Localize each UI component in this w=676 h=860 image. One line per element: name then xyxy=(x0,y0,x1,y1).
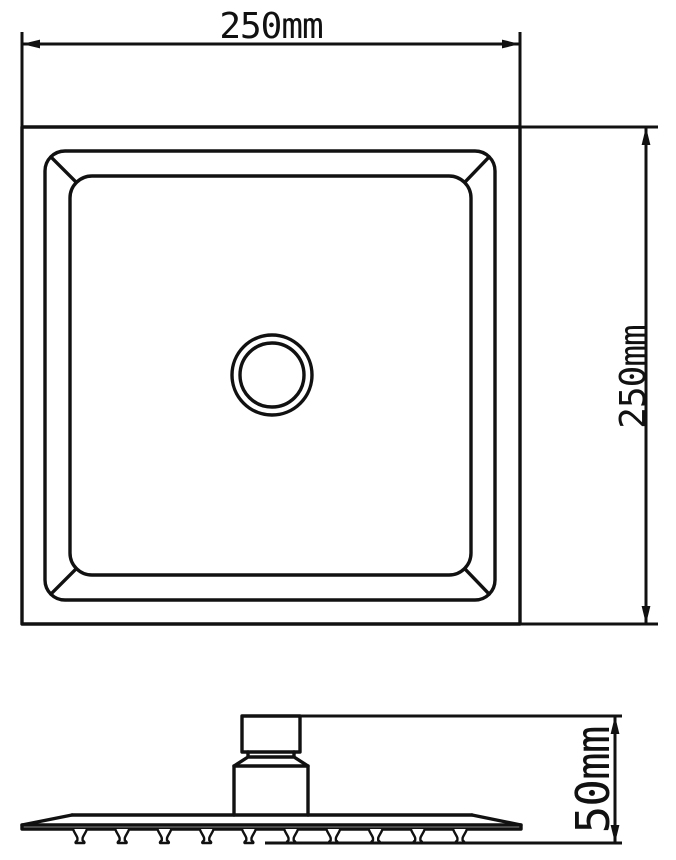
connector-collar xyxy=(234,752,308,766)
side-height-dimension-label: 50mm xyxy=(566,727,620,834)
width-dimension-label: 250mm xyxy=(219,6,322,47)
technical-drawing-page: 250mm 250mm xyxy=(0,0,676,860)
height-dimension-label: 250mm xyxy=(613,325,654,428)
nozzle-row xyxy=(73,829,467,843)
outer-square-edge xyxy=(22,127,520,624)
arrowhead-down-icon xyxy=(642,606,651,624)
arrowhead-up-icon xyxy=(642,127,651,145)
nozzle xyxy=(284,829,298,843)
top-width-dimension: 250mm xyxy=(22,6,520,127)
nozzle xyxy=(115,829,129,843)
arrowhead-left-icon xyxy=(22,40,40,49)
arrowhead-right-icon xyxy=(502,40,520,49)
right-height-dimension: 250mm xyxy=(520,127,658,624)
corner-chamfer-lines xyxy=(51,157,489,594)
bevel-rim-rounded-square xyxy=(45,151,495,600)
nozzle xyxy=(200,829,214,843)
nozzle xyxy=(242,829,256,843)
shower-head-dimension-drawing: 250mm 250mm xyxy=(0,0,676,860)
plate-face-band xyxy=(22,825,521,829)
inner-face-rounded-square xyxy=(70,176,471,575)
nozzle xyxy=(157,829,171,843)
nozzle xyxy=(411,829,425,843)
nozzle xyxy=(369,829,383,843)
top-view xyxy=(22,127,520,624)
side-view xyxy=(22,716,521,843)
nozzle xyxy=(453,829,467,843)
center-inlet-inner-circle xyxy=(240,343,304,407)
nozzle xyxy=(326,829,340,843)
connector-base-block xyxy=(234,766,308,815)
center-inlet-outer-circle xyxy=(232,335,312,415)
inlet-connector-top-block xyxy=(242,716,300,752)
nozzle xyxy=(73,829,87,843)
